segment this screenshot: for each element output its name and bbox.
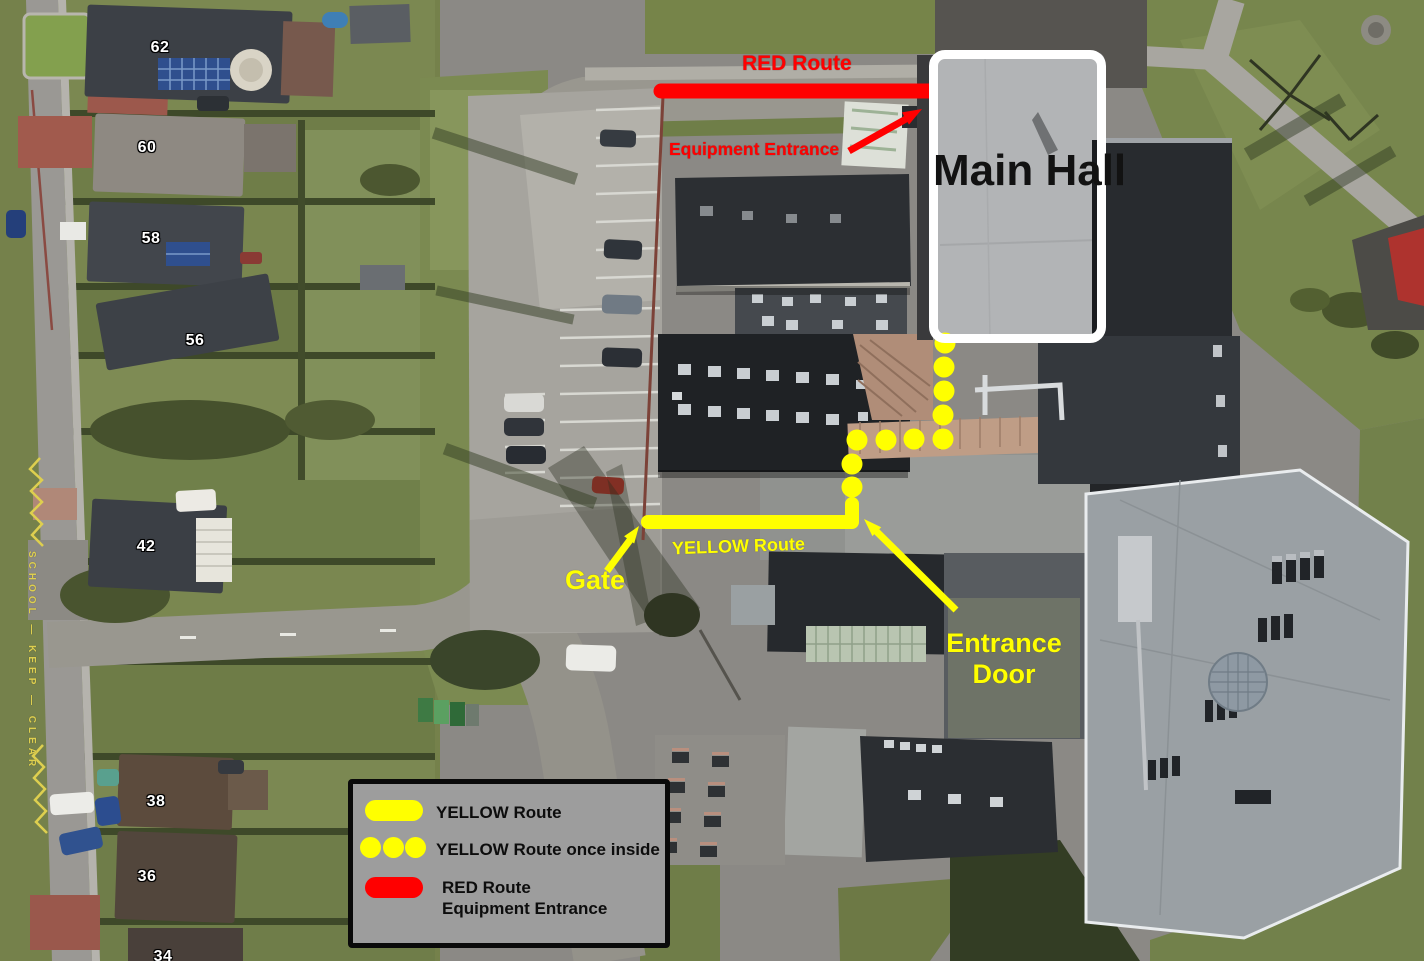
legend-label-red-route: RED Route: [442, 878, 531, 898]
house-number-42: 42: [129, 538, 163, 556]
house-number-58: 58: [134, 230, 168, 248]
house-number-36: 36: [130, 868, 164, 886]
yellow-route-dots: [842, 333, 956, 498]
house-number-56: 56: [178, 332, 212, 350]
equipment-entrance-label: Equipment Entrance: [669, 140, 839, 158]
route-legend: YELLOW Route YELLOW Route once inside RE…: [348, 779, 670, 948]
yellow-dots-symbol: [383, 837, 404, 858]
equipment-entrance-arrow: [849, 109, 922, 151]
house-number-34: 34: [146, 948, 180, 961]
red-line-symbol: [365, 877, 423, 898]
yellow-dots-symbol: [405, 837, 426, 858]
yellow-line-symbol: [365, 800, 423, 821]
yellow-route-line: [648, 504, 852, 522]
entrance-door-arrow: [864, 519, 956, 610]
legend-label-red-route-sub: Equipment Entrance: [442, 899, 607, 919]
house-number-38: 38: [139, 793, 173, 811]
house-number-62: 62: [143, 39, 177, 57]
legend-label-yellow-dots: YELLOW Route once inside: [436, 840, 660, 860]
aerial-map: RED Route Equipment Entrance Main Hall Y…: [0, 0, 1424, 961]
entrance-door-label: Entrance Door: [938, 628, 1070, 690]
house-number-60: 60: [130, 139, 164, 157]
gate-label: Gate: [565, 566, 625, 594]
main-hall-label: Main Hall: [933, 143, 1105, 199]
legend-label-yellow-route: YELLOW Route: [436, 803, 562, 823]
yellow-dots-symbol: [360, 837, 381, 858]
red-route-label: RED Route: [742, 53, 852, 75]
school-keep-clear-marking: SCHOOL — KEEP — CLEAR: [26, 551, 37, 770]
